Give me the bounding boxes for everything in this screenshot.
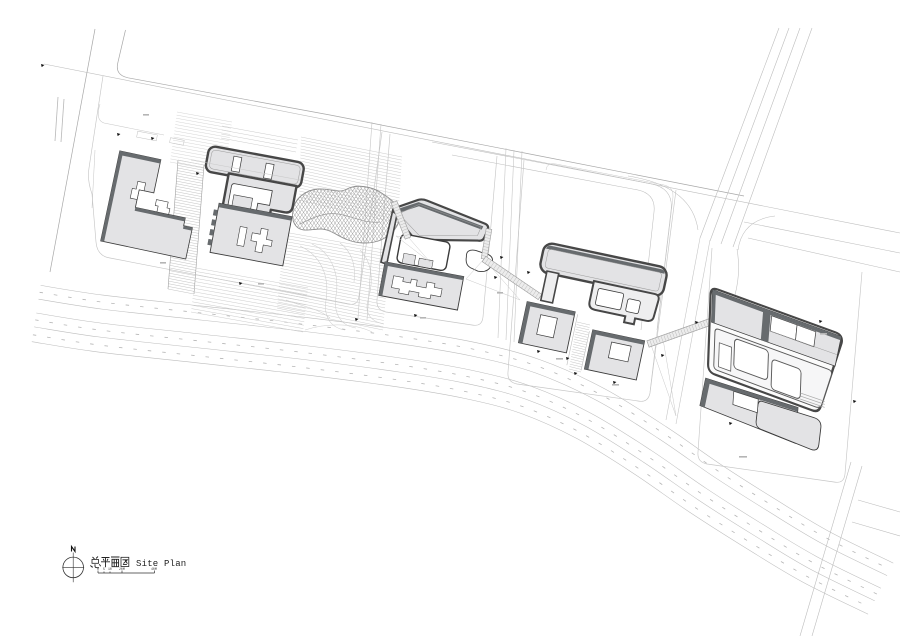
svg-text:5: 5 bbox=[103, 567, 105, 571]
svg-text:0: 0 bbox=[97, 567, 99, 571]
svg-text:40M: 40M bbox=[151, 567, 157, 571]
svg-text:Site Plan: Site Plan bbox=[136, 559, 186, 569]
svg-text:20M: 20M bbox=[119, 567, 125, 571]
svg-text:10: 10 bbox=[108, 567, 112, 571]
